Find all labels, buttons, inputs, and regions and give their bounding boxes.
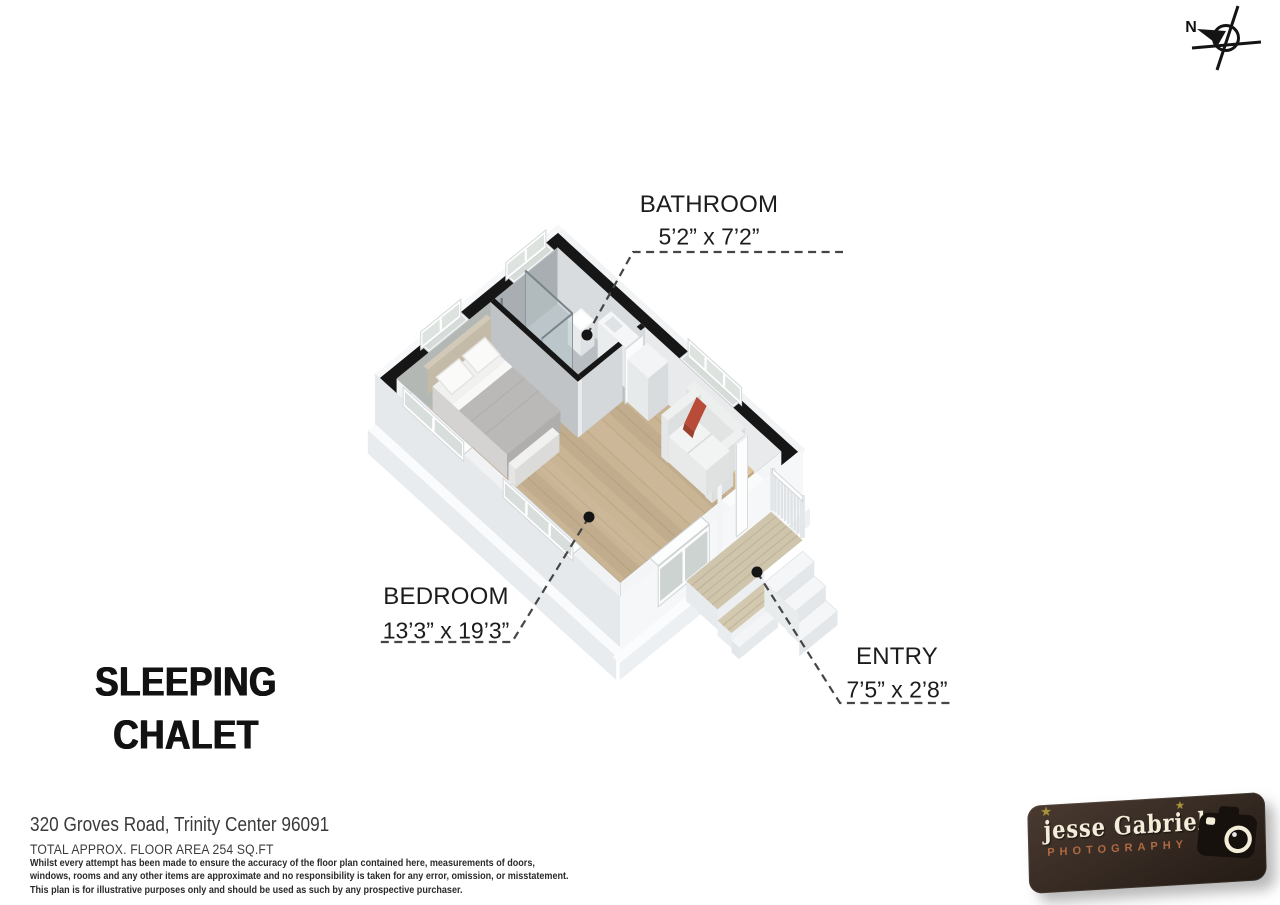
bedroom-label: BEDROOM (383, 583, 508, 611)
compass-north-label: N (1185, 19, 1197, 37)
star-icon: ★ (1040, 804, 1052, 821)
star-icon: ★ (1175, 799, 1185, 813)
property-title-line2: CHALET (113, 712, 259, 759)
floor-area-note: TOTAL APPROX. FLOOR AREA 254 SQ.FT (30, 842, 587, 857)
camera-icon (1194, 802, 1261, 864)
disclaimer-line-1: Whilst every attempt has been made to en… (30, 857, 569, 870)
property-title-line1: SLEEPING (95, 659, 277, 706)
floorplan-flyer: BATHROOM 5’2” x 7’2” BEDROOM 13’3” x 19’… (0, 0, 1280, 905)
floorplan-rendering (0, 0, 1280, 905)
bathroom-dimensions: 5’2” x 7’2” (659, 224, 760, 251)
disclaimer-line-2: windows, rooms and any other items are a… (30, 870, 569, 883)
disclaimer-line-3: This plan is for illustrative purposes o… (30, 884, 569, 897)
entry-label: ENTRY (856, 643, 938, 671)
entry-dimensions: 7’5” x 2’8” (847, 677, 948, 704)
footer-block: 320 Groves Road, Trinity Center 96091 TO… (30, 814, 649, 897)
bedroom-dimensions: 13’3” x 19’3” (383, 618, 510, 645)
compass-icon (1192, 6, 1261, 70)
property-address: 320 Groves Road, Trinity Center 96091 (30, 814, 562, 837)
photographer-logo: ★ ★ jesse Gabriel PHOTOGRAPHY (1027, 792, 1267, 894)
bathroom-label: BATHROOM (640, 191, 779, 219)
